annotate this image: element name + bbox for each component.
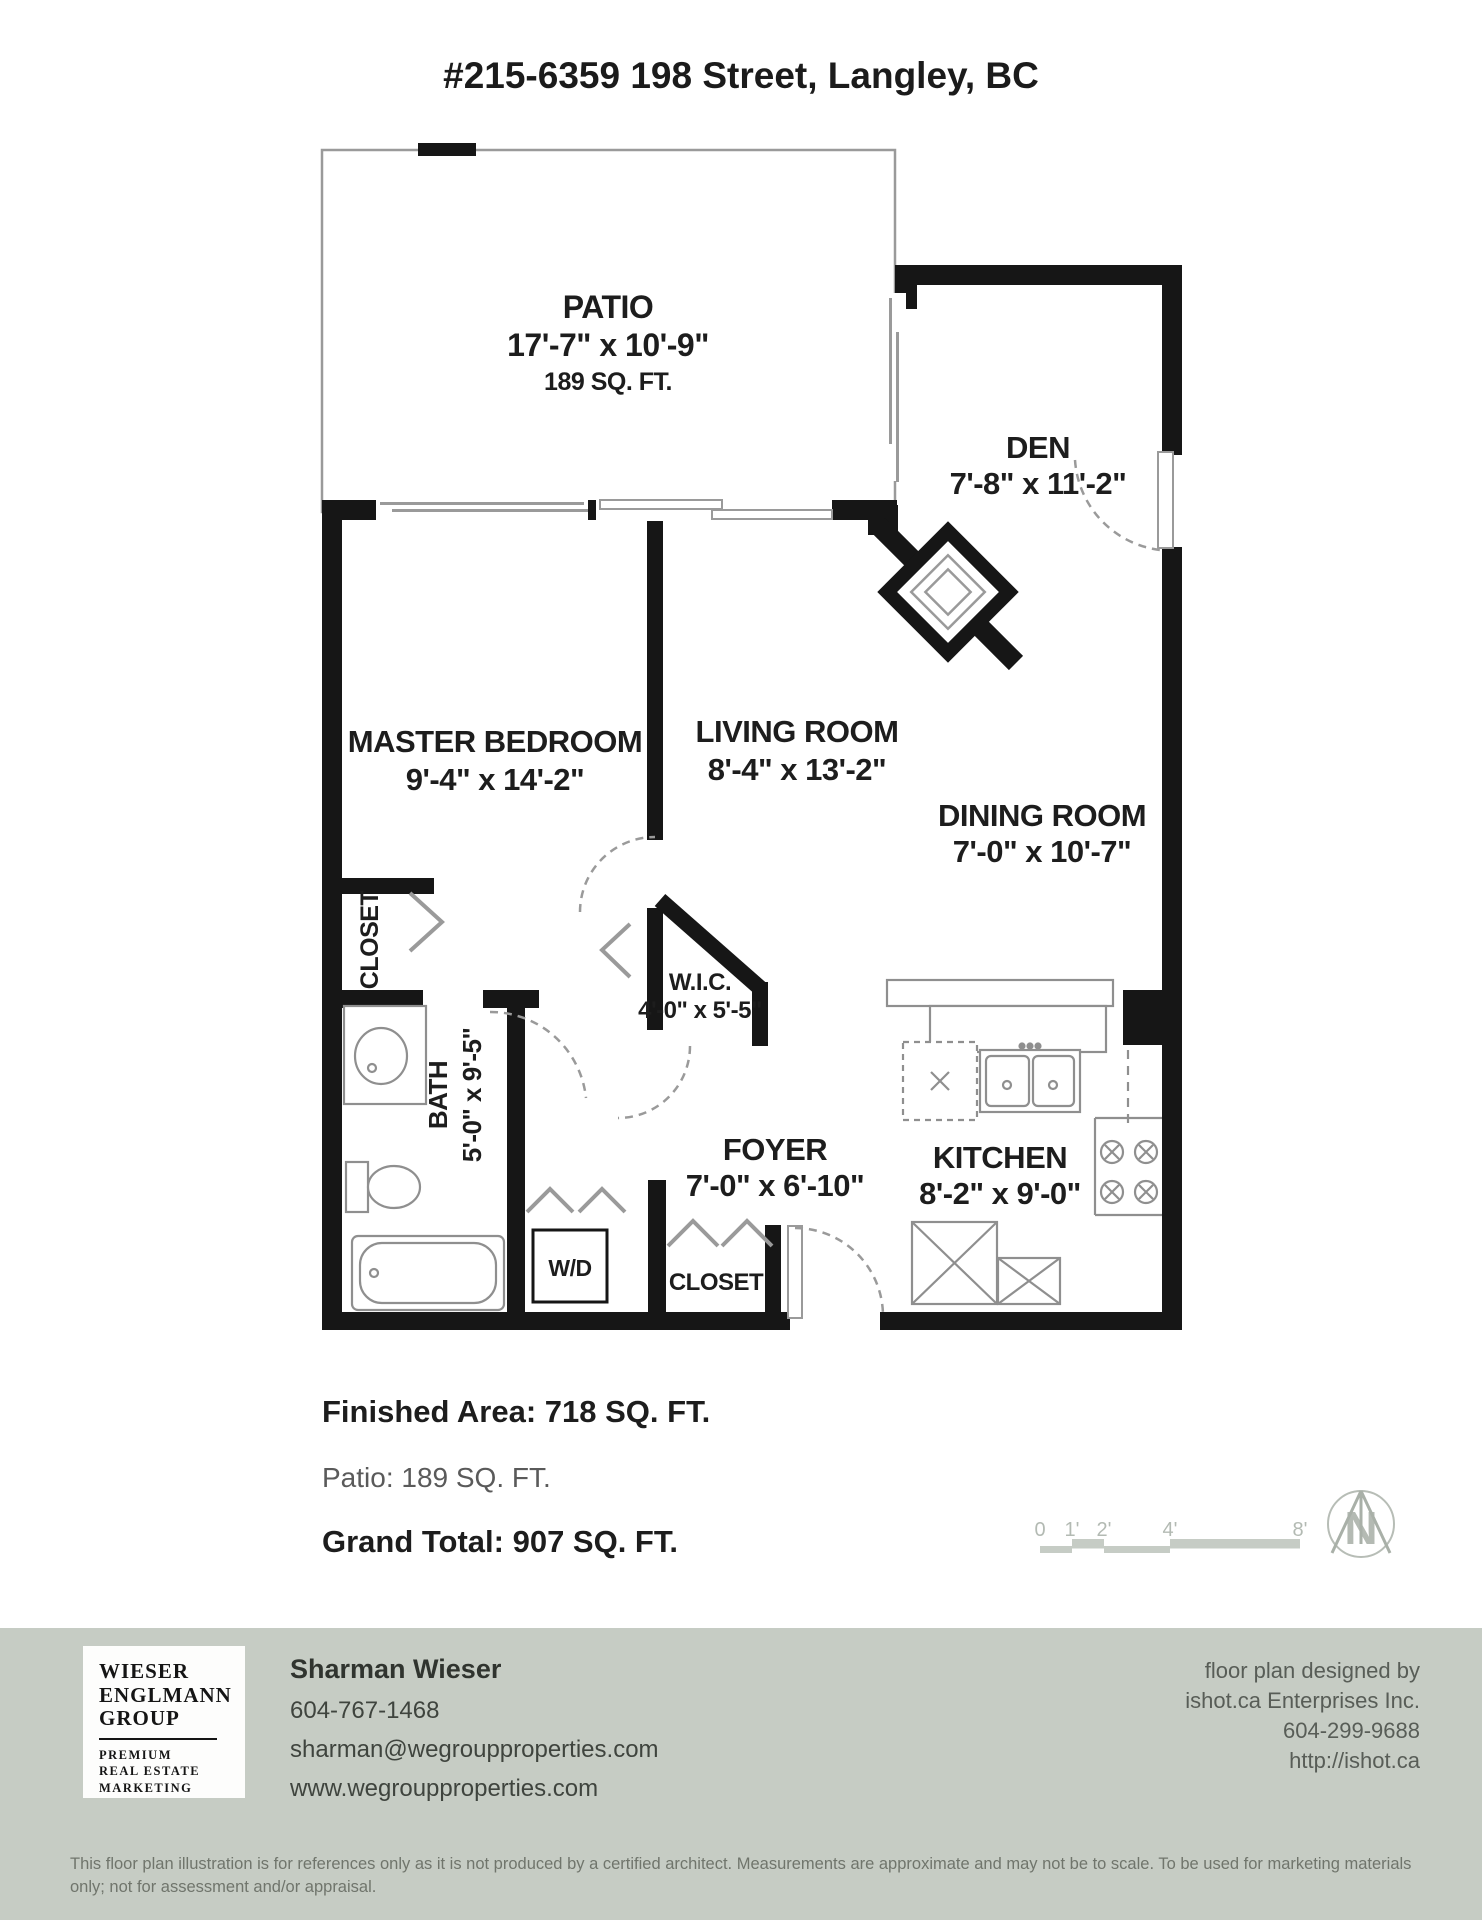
entry-door-arc <box>795 1228 883 1316</box>
finished-area-text: Finished Area: 718 SQ. FT. <box>322 1394 710 1429</box>
scale-tick: 8' <box>1293 1519 1308 1541</box>
faucet-dot <box>1020 1044 1025 1049</box>
scale-bar-segment <box>1104 1546 1170 1553</box>
master-closet-label: CLOSET <box>356 891 384 990</box>
dining-room-label: DINING ROOM <box>938 798 1146 833</box>
corner-fireplace <box>877 521 1018 663</box>
kitchen-dims: 8'-2" x 9'-0" <box>919 1176 1081 1211</box>
agent-phone: 604-767-1468 <box>290 1697 659 1725</box>
bath-label: BATH <box>423 1061 453 1129</box>
window-line <box>896 332 899 482</box>
logo-line: GROUP <box>99 1707 245 1731</box>
patio-label: PATIO <box>563 289 654 325</box>
cooktop <box>1101 1141 1157 1203</box>
wall-segment <box>322 500 342 1330</box>
window-line <box>889 298 892 444</box>
patio-area: 189 SQ. FT. <box>544 368 672 396</box>
faucet-dot <box>1028 1044 1033 1049</box>
designer-credit-block: floor plan designed by ishot.ca Enterpri… <box>1185 1656 1420 1776</box>
breakfast-bar <box>887 980 1113 1006</box>
page-title: #215-6359 198 Street, Langley, BC <box>443 55 1039 96</box>
wall-segment <box>418 143 476 156</box>
designer-line: floor plan designed by <box>1185 1656 1420 1686</box>
logo-line: ENGLMANN <box>99 1684 245 1708</box>
door-leaf <box>1158 452 1173 548</box>
compass-icon: N <box>1328 1491 1394 1557</box>
washer-dryer-label: W/D <box>548 1255 591 1281</box>
scale-bar-segment <box>1072 1539 1104 1546</box>
wall-segment <box>1123 990 1182 1045</box>
master-bedroom-label: MASTER BEDROOM <box>348 724 642 759</box>
scale-tick: 1' <box>1065 1519 1080 1541</box>
logo-subline: MARKETING <box>99 1780 245 1797</box>
toilet-bowl <box>368 1166 420 1208</box>
disclaimer-text: This floor plan illustration is for refe… <box>70 1853 1422 1899</box>
dining-room-dims: 7'-0" x 10'-7" <box>953 834 1131 869</box>
wall-segment <box>647 518 663 840</box>
logo-subline: REAL ESTATE <box>99 1763 245 1780</box>
living-room-label: LIVING ROOM <box>696 714 899 749</box>
living-room-dims: 8'-4" x 13'-2" <box>708 752 886 787</box>
wic-bifold-door <box>602 924 630 977</box>
logo-divider <box>99 1738 217 1740</box>
scale-tick: 0 <box>1034 1519 1045 1541</box>
faucet-dot <box>1036 1044 1041 1049</box>
designer-line: ishot.ca Enterprises Inc. <box>1185 1686 1420 1716</box>
logo-subline: PREMIUM <box>99 1747 245 1764</box>
agent-website: www.wegroupproperties.com <box>290 1775 659 1803</box>
brokerage-logo: WIESER ENGLMANN GROUP PREMIUM REAL ESTAT… <box>83 1646 245 1798</box>
wall-segment <box>483 990 539 1008</box>
agent-name: Sharman Wieser <box>290 1654 659 1685</box>
master-bedroom-dims: 9'-4" x 14'-2" <box>406 762 584 797</box>
sink-drain <box>1049 1081 1057 1089</box>
scale-bar-segment <box>1170 1539 1300 1546</box>
wall-segment <box>895 265 1182 285</box>
sink-drain <box>1003 1081 1011 1089</box>
wd-bifold-door <box>579 1189 625 1212</box>
wd-bifold-door <box>527 1189 573 1212</box>
designer-phone: 604-299-9688 <box>1185 1716 1420 1746</box>
wall-segment <box>648 1180 666 1312</box>
wall-segment <box>880 1312 1182 1330</box>
wall-segment <box>507 1008 525 1312</box>
closet-bifold-door <box>410 893 442 951</box>
foyer-closet-bifold-door <box>722 1221 772 1246</box>
master-door-arc <box>580 837 655 912</box>
foyer-closet-bifold-door <box>668 1221 718 1246</box>
den-dims: 7'-8" x 11'-2" <box>950 466 1127 501</box>
logo-line: WIESER <box>99 1660 245 1684</box>
north-arrow <box>1332 1491 1390 1553</box>
wic-dims: 4'-0" x 5'-5" <box>638 997 762 1024</box>
tub-drain <box>370 1269 378 1277</box>
toilet-tank <box>346 1162 368 1212</box>
wic-door-arc <box>618 1046 690 1118</box>
wall-segment <box>1162 265 1182 455</box>
patio-dims: 17'-7" x 10'-9" <box>507 327 709 363</box>
floor-plan-canvas: #215-6359 198 Street, Langley, BC <box>0 0 1482 1628</box>
window-line <box>392 509 588 512</box>
floor-plan-page: #215-6359 198 Street, Langley, BC <box>0 0 1482 1920</box>
wall-segment <box>765 1225 781 1312</box>
footer: WIESER ENGLMANN GROUP PREMIUM REAL ESTAT… <box>0 1628 1482 1920</box>
designer-url: http://ishot.ca <box>1185 1746 1420 1776</box>
agent-email: sharman@wegroupproperties.com <box>290 1736 659 1764</box>
vanity-sink <box>355 1028 407 1084</box>
entry-door-leaf <box>788 1226 802 1318</box>
sink-drain <box>368 1064 376 1072</box>
foyer-closet-label: CLOSET <box>669 1269 764 1296</box>
sliding-door-panel <box>600 500 722 509</box>
den-label: DEN <box>1006 430 1070 465</box>
kitchen-label: KITCHEN <box>933 1140 1067 1175</box>
bath-door-arc <box>490 1012 586 1098</box>
scale-bar: 0 1' 2' 4' 8' <box>1034 1519 1307 1553</box>
patio-area-text: Patio: 189 SQ. FT. <box>322 1462 551 1493</box>
scale-tick: 4' <box>1163 1519 1178 1541</box>
window-line <box>380 502 584 505</box>
foyer-dims: 7'-0" x 6'-10" <box>686 1168 864 1203</box>
wall-segment <box>1162 547 1182 1330</box>
scale-tick: 2' <box>1097 1519 1112 1541</box>
foyer-label: FOYER <box>723 1132 827 1167</box>
bath-dims: 5'-0" x 9'-5" <box>457 1028 487 1163</box>
wic-label: W.I.C. <box>669 969 731 996</box>
agent-contact-block: Sharman Wieser 604-767-1468 sharman@wegr… <box>290 1654 659 1814</box>
wall-segment <box>322 1312 790 1330</box>
grand-total-text: Grand Total: 907 SQ. FT. <box>322 1524 678 1559</box>
sliding-door-panel <box>712 510 832 519</box>
scale-bar-segment <box>1040 1546 1072 1553</box>
